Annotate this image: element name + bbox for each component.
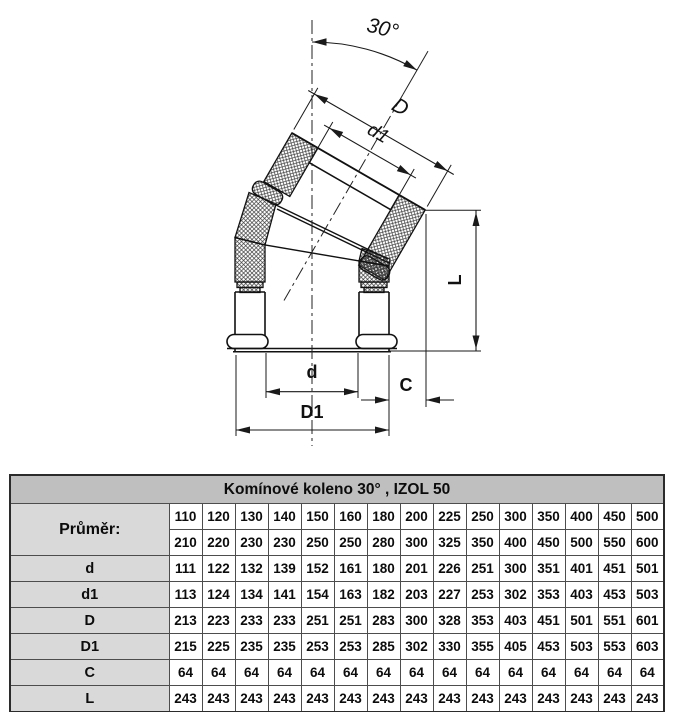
value-cell: 243 — [565, 686, 598, 712]
value-cell: 500 — [631, 504, 664, 530]
value-cell: 243 — [598, 686, 631, 712]
value-cell: 230 — [268, 530, 301, 556]
value-cell: 64 — [598, 660, 631, 686]
value-cell: 225 — [433, 504, 466, 530]
value-cell: 124 — [202, 582, 235, 608]
value-cell: 405 — [499, 634, 532, 660]
value-cell: 243 — [433, 686, 466, 712]
table-row: Průměr:110120130140150160180200225250300… — [10, 504, 664, 530]
value-cell: 551 — [598, 608, 631, 634]
value-cell: 300 — [499, 504, 532, 530]
value-cell: 243 — [202, 686, 235, 712]
value-cell: 200 — [400, 504, 433, 530]
value-cell: 243 — [301, 686, 334, 712]
value-cell: 64 — [301, 660, 334, 686]
value-cell: 110 — [169, 504, 202, 530]
table-row: d111312413414115416318220322725330235340… — [10, 582, 664, 608]
value-cell: 453 — [598, 582, 631, 608]
value-cell: 243 — [631, 686, 664, 712]
value-cell: 180 — [367, 556, 400, 582]
value-cell: 251 — [466, 556, 499, 582]
table-row: D121522523523525325328530233035540545350… — [10, 634, 664, 660]
value-cell: 230 — [235, 530, 268, 556]
value-cell: 253 — [466, 582, 499, 608]
dim-label-d: d — [307, 362, 318, 382]
row-label: C — [10, 660, 169, 686]
value-cell: 553 — [598, 634, 631, 660]
value-cell: 64 — [367, 660, 400, 686]
value-cell: 451 — [532, 608, 565, 634]
spec-table: Komínové koleno 30° , IZOL 50 Průměr:110… — [9, 474, 665, 712]
value-cell: 64 — [334, 660, 367, 686]
dim-label-D: D — [388, 93, 413, 121]
value-cell: 243 — [499, 686, 532, 712]
value-cell: 152 — [301, 556, 334, 582]
value-cell: 64 — [400, 660, 433, 686]
value-cell: 250 — [301, 530, 334, 556]
technical-drawing: D d1 — [0, 0, 674, 468]
value-cell: 235 — [235, 634, 268, 660]
value-cell: 453 — [532, 634, 565, 660]
value-cell: 280 — [367, 530, 400, 556]
value-cell: 160 — [334, 504, 367, 530]
value-cell: 182 — [367, 582, 400, 608]
value-cell: 300 — [400, 608, 433, 634]
value-cell: 350 — [466, 530, 499, 556]
value-cell: 134 — [235, 582, 268, 608]
spec-table-body: Komínové koleno 30° , IZOL 50 Průměr:110… — [10, 475, 664, 712]
row-label: d1 — [10, 582, 169, 608]
dimension-d: d — [266, 353, 358, 398]
row-label: L — [10, 686, 169, 712]
value-cell: 161 — [334, 556, 367, 582]
value-cell: 501 — [631, 556, 664, 582]
value-cell: 139 — [268, 556, 301, 582]
value-cell: 213 — [169, 608, 202, 634]
value-cell: 64 — [499, 660, 532, 686]
page: D d1 — [0, 0, 674, 712]
value-cell: 140 — [268, 504, 301, 530]
value-cell: 253 — [334, 634, 367, 660]
value-cell: 233 — [235, 608, 268, 634]
value-cell: 285 — [367, 634, 400, 660]
table-row: d111122132139152161180201226251300351401… — [10, 556, 664, 582]
liner-recess — [309, 148, 399, 210]
value-cell: 226 — [433, 556, 466, 582]
value-cell: 603 — [631, 634, 664, 660]
value-cell: 201 — [400, 556, 433, 582]
table-row: C646464646464646464646464646464 — [10, 660, 664, 686]
value-cell: 215 — [169, 634, 202, 660]
value-cell: 113 — [169, 582, 202, 608]
table-row: D213223233233251251283300328353403451501… — [10, 608, 664, 634]
value-cell: 243 — [334, 686, 367, 712]
value-cell: 235 — [268, 634, 301, 660]
value-cell: 111 — [169, 556, 202, 582]
value-cell: 251 — [301, 608, 334, 634]
value-cell: 64 — [235, 660, 268, 686]
row-label: d — [10, 556, 169, 582]
value-cell: 503 — [565, 634, 598, 660]
table-title: Komínové koleno 30° , IZOL 50 — [10, 475, 664, 504]
value-cell: 253 — [301, 634, 334, 660]
value-cell: 501 — [565, 608, 598, 634]
angle-label: 30° — [364, 14, 400, 44]
value-cell: 251 — [334, 608, 367, 634]
value-cell: 243 — [367, 686, 400, 712]
value-cell: 503 — [631, 582, 664, 608]
value-cell: 122 — [202, 556, 235, 582]
dim-label-D1: D1 — [300, 402, 323, 422]
dim-label-d1: d1 — [364, 119, 393, 148]
value-cell: 64 — [202, 660, 235, 686]
value-cell: 64 — [433, 660, 466, 686]
row-label: D1 — [10, 634, 169, 660]
value-cell: 450 — [532, 530, 565, 556]
value-cell: 154 — [301, 582, 334, 608]
value-cell: 163 — [334, 582, 367, 608]
value-cell: 401 — [565, 556, 598, 582]
value-cell: 283 — [367, 608, 400, 634]
value-cell: 243 — [169, 686, 202, 712]
value-cell: 64 — [466, 660, 499, 686]
value-cell: 64 — [268, 660, 301, 686]
value-cell: 355 — [466, 634, 499, 660]
value-cell: 180 — [367, 504, 400, 530]
value-cell: 328 — [433, 608, 466, 634]
value-cell: 353 — [532, 582, 565, 608]
value-cell: 220 — [202, 530, 235, 556]
row-label: Průměr: — [10, 504, 169, 556]
value-cell: 550 — [598, 530, 631, 556]
value-cell: 302 — [400, 634, 433, 660]
value-cell: 601 — [631, 608, 664, 634]
value-cell: 300 — [499, 556, 532, 582]
value-cell: 243 — [466, 686, 499, 712]
value-cell: 64 — [532, 660, 565, 686]
value-cell: 330 — [433, 634, 466, 660]
value-cell: 64 — [631, 660, 664, 686]
value-cell: 150 — [301, 504, 334, 530]
value-cell: 120 — [202, 504, 235, 530]
value-cell: 223 — [202, 608, 235, 634]
value-cell: 600 — [631, 530, 664, 556]
value-cell: 243 — [235, 686, 268, 712]
value-cell: 132 — [235, 556, 268, 582]
value-cell: 64 — [169, 660, 202, 686]
value-cell: 300 — [400, 530, 433, 556]
row-label: D — [10, 608, 169, 634]
value-cell: 325 — [433, 530, 466, 556]
value-cell: 210 — [169, 530, 202, 556]
value-cell: 243 — [532, 686, 565, 712]
value-cell: 400 — [565, 504, 598, 530]
dim-label-C: C — [400, 375, 413, 395]
value-cell: 403 — [499, 608, 532, 634]
value-cell: 403 — [565, 582, 598, 608]
value-cell: 64 — [565, 660, 598, 686]
table-title-row: Komínové koleno 30° , IZOL 50 — [10, 475, 664, 504]
value-cell: 233 — [268, 608, 301, 634]
value-cell: 400 — [499, 530, 532, 556]
value-cell: 203 — [400, 582, 433, 608]
value-cell: 250 — [466, 504, 499, 530]
dim-label-L: L — [445, 275, 465, 286]
value-cell: 243 — [400, 686, 433, 712]
value-cell: 141 — [268, 582, 301, 608]
value-cell: 350 — [532, 504, 565, 530]
value-cell: 130 — [235, 504, 268, 530]
inclined-centerline — [284, 51, 428, 300]
value-cell: 450 — [598, 504, 631, 530]
angle-dimension: 30° — [312, 14, 417, 70]
value-cell: 302 — [499, 582, 532, 608]
value-cell: 250 — [334, 530, 367, 556]
value-cell: 227 — [433, 582, 466, 608]
value-cell: 451 — [598, 556, 631, 582]
value-cell: 500 — [565, 530, 598, 556]
value-cell: 225 — [202, 634, 235, 660]
value-cell: 243 — [268, 686, 301, 712]
value-cell: 351 — [532, 556, 565, 582]
value-cell: 353 — [466, 608, 499, 634]
table-row: L243243243243243243243243243243243243243… — [10, 686, 664, 712]
